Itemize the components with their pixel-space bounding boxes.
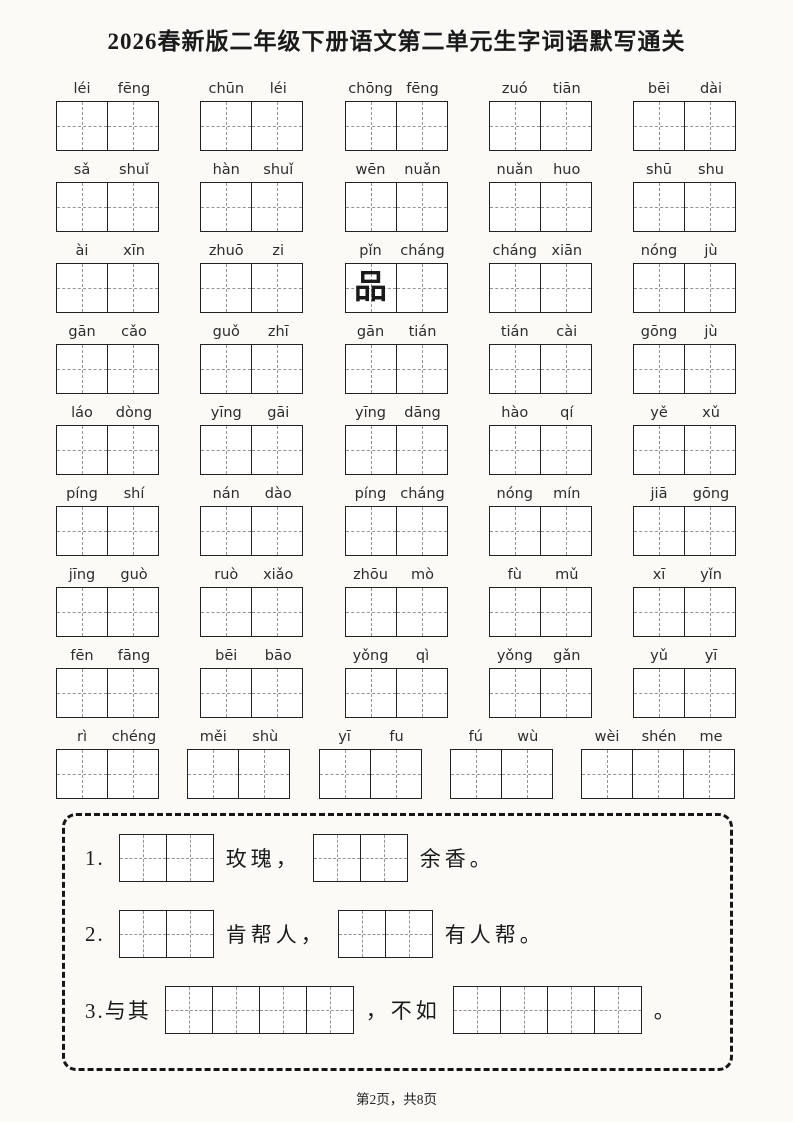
pinyin-row: yīfu [319, 728, 423, 747]
writing-grid [200, 344, 303, 394]
grid-cell [107, 102, 158, 150]
grid-cell [684, 345, 735, 393]
pinyin-row: fùmǔ [489, 566, 593, 585]
pinyin-syllable: mò [397, 566, 449, 585]
pinyin-syllable: hàn [200, 161, 252, 180]
pinyin-syllable: xǔ [685, 404, 737, 423]
pinyin-syllable: fēn [56, 647, 108, 666]
pinyin-row: xīyǐn [633, 566, 737, 585]
pinyin-syllable: zhuō [200, 242, 252, 261]
grid-cell [501, 750, 552, 798]
word-group: fúwù [450, 728, 554, 799]
word-group: xīyǐn [633, 566, 737, 637]
grid-cell [634, 669, 684, 717]
word-row-8: fēnfāngbēibāoyǒngqìyǒnggǎnyǔyī [56, 647, 737, 718]
grid-cell [396, 345, 447, 393]
grid-cell [396, 669, 447, 717]
grid-cell [490, 102, 540, 150]
exercise-text: ，不如 [366, 995, 441, 1025]
writing-grid [313, 834, 408, 882]
pinyin-row: ruòxiǎo [200, 566, 304, 585]
answer-cell [547, 987, 594, 1033]
answer-cell [259, 987, 306, 1033]
writing-grid [200, 425, 303, 475]
writing-grid [489, 587, 592, 637]
pinyin-syllable: ài [56, 242, 108, 261]
grid-cell [540, 183, 591, 231]
grid-cell [201, 102, 251, 150]
pinyin-row: hàoqí [489, 404, 593, 423]
pinyin-syllable: jīng [56, 566, 108, 585]
grid-cell [251, 426, 302, 474]
word-row-5: láodòngyīnggāiyīngdānghàoqíyěxǔ [56, 404, 737, 475]
grid-cell [251, 102, 302, 150]
pinyin-row: píngshí [56, 485, 160, 504]
grid-cell [396, 507, 447, 555]
pinyin-syllable: yǔ [633, 647, 685, 666]
pinyin-syllable: gōng [685, 485, 737, 504]
word-group: yǔyī [633, 647, 737, 718]
pinyin-syllable: zhī [252, 323, 304, 342]
answer-cell [120, 911, 166, 957]
writing-grid [56, 344, 159, 394]
exercise-text: 肯帮人， [226, 919, 326, 949]
pinyin-syllable: huo [541, 161, 593, 180]
pinyin-row: chūnléi [200, 80, 304, 99]
pinyin-syllable: léi [56, 80, 108, 99]
word-group: guǒzhī [200, 323, 304, 394]
pinyin-syllable: xiǎo [252, 566, 304, 585]
writing-grid [56, 587, 159, 637]
answer-cell [306, 987, 353, 1033]
pinyin-row: láodòng [56, 404, 160, 423]
grid-cell [107, 507, 158, 555]
pinyin-row: yǒnggǎn [489, 647, 593, 666]
pinyin-syllable: shí [108, 485, 160, 504]
pinyin-syllable: chéng [108, 728, 160, 747]
grid-cell [57, 426, 107, 474]
writing-grid [489, 668, 592, 718]
grid-cell [251, 183, 302, 231]
pinyin-syllable: yǒng [345, 647, 397, 666]
pinyin-syllable: mín [541, 485, 593, 504]
word-group: zhuōzi [200, 242, 304, 313]
pinyin-syllable: hào [489, 404, 541, 423]
pinyin-syllable: nuǎn [397, 161, 449, 180]
pinyin-syllable: guǒ [200, 323, 252, 342]
page-footer: 第2页，共8页 [0, 1088, 793, 1108]
pinyin-row: yǒngqì [345, 647, 449, 666]
pinyin-row: àixīn [56, 242, 160, 261]
pinyin-syllable: tián [397, 323, 449, 342]
pinyin-syllable: fù [489, 566, 541, 585]
word-group: chūnléi [200, 80, 304, 151]
writing-grid [200, 182, 303, 232]
grid-cell [634, 102, 684, 150]
grid-cell [107, 588, 158, 636]
pinyin-syllable: rì [56, 728, 108, 747]
grid-cell [57, 507, 107, 555]
grid-cell [107, 183, 158, 231]
grid-cell [396, 426, 447, 474]
pinyin-syllable: dòng [108, 404, 160, 423]
writing-grid [345, 668, 448, 718]
grid-cell [346, 345, 396, 393]
grid-cell [346, 183, 396, 231]
writing-grid [56, 101, 159, 151]
word-group: yīfu [319, 728, 423, 799]
grid-cell [540, 345, 591, 393]
pinyin-syllable: yě [633, 404, 685, 423]
pinyin-row: fúwù [450, 728, 554, 747]
pinyin-syllable: bāo [252, 647, 304, 666]
grid-cell [107, 750, 158, 798]
pinyin-syllable: píng [56, 485, 108, 504]
word-group: yīnggāi [200, 404, 304, 475]
exercise-text: 余香。 [420, 843, 495, 873]
pinyin-syllable: xī [633, 566, 685, 585]
writing-grid [345, 506, 448, 556]
filled-character: 品 [354, 272, 387, 305]
pinyin-syllable: nán [200, 485, 252, 504]
grid-cell [540, 426, 591, 474]
grid-cell [540, 102, 591, 150]
word-group: píngcháng [345, 485, 449, 556]
pinyin-syllable: pǐn [345, 242, 397, 261]
writing-grid [633, 344, 736, 394]
answer-cell [120, 835, 166, 881]
writing-grid [56, 182, 159, 232]
pinyin-row: pǐncháng [345, 242, 449, 261]
writing-grid [187, 749, 290, 799]
grid-cell [490, 345, 540, 393]
writing-grid [338, 910, 433, 958]
writing-grid [489, 182, 592, 232]
word-row-1: léifēngchūnléichōngfēngzuótiānbēidài [56, 80, 737, 151]
word-group: ruòxiǎo [200, 566, 304, 637]
writing-grid [345, 182, 448, 232]
writing-grid [345, 425, 448, 475]
pinyin-row: jiāgōng [633, 485, 737, 504]
pinyin-syllable: dào [252, 485, 304, 504]
pinyin-row: yěxǔ [633, 404, 737, 423]
grid-cell [540, 669, 591, 717]
grid-cell [201, 507, 251, 555]
pinyin-syllable: gān [56, 323, 108, 342]
grid-cell [57, 669, 107, 717]
grid-cell [540, 507, 591, 555]
grid-cell [396, 183, 447, 231]
word-group: tiáncài [489, 323, 593, 394]
pinyin-row: sǎshuǐ [56, 161, 160, 180]
pinyin-syllable: yǐn [685, 566, 737, 585]
writing-grid [633, 506, 736, 556]
writing-grid [345, 344, 448, 394]
writing-grid [56, 506, 159, 556]
writing-grid [489, 101, 592, 151]
pinyin-syllable: tián [489, 323, 541, 342]
word-group: chōngfēng [345, 80, 449, 151]
pinyin-syllable: cháng [397, 485, 449, 504]
grid-cell [57, 588, 107, 636]
pinyin-syllable: dāng [397, 404, 449, 423]
word-group: gōngjù [633, 323, 737, 394]
pinyin-syllable: gōng [633, 323, 685, 342]
answer-cell [166, 835, 213, 881]
grid-cell [346, 426, 396, 474]
answer-cell [314, 835, 360, 881]
pinyin-row: bēidài [633, 80, 737, 99]
writing-grid [56, 425, 159, 475]
pinyin-syllable: fāng [108, 647, 160, 666]
grid-cell [346, 588, 396, 636]
pinyin-syllable: jù [685, 242, 737, 261]
pinyin-row: léifēng [56, 80, 160, 99]
pinyin-syllable: cǎo [108, 323, 160, 342]
writing-grid [200, 668, 303, 718]
grid-cell [634, 183, 684, 231]
grid-cell [684, 588, 735, 636]
pinyin-row: nándào [200, 485, 304, 504]
pinyin-row: yǔyī [633, 647, 737, 666]
pinyin-row: yīngdāng [345, 404, 449, 423]
pinyin-syllable: cháng [397, 242, 449, 261]
writing-grid [56, 263, 159, 313]
grid-cell [634, 345, 684, 393]
grid-cell [201, 183, 251, 231]
grid-cell [582, 750, 632, 798]
pinyin-row: yīnggāi [200, 404, 304, 423]
word-group: yǒngqì [345, 647, 449, 718]
pinyin-syllable: wēn [345, 161, 397, 180]
exercise-text: 有人帮。 [445, 919, 545, 949]
pinyin-syllable: léi [252, 80, 304, 99]
word-group: àixīn [56, 242, 160, 313]
answer-cell [594, 987, 641, 1033]
pinyin-syllable: shū [633, 161, 685, 180]
pinyin-syllable: yī [319, 728, 371, 747]
pinyin-syllable: qì [397, 647, 449, 666]
pinyin-row: měishù [187, 728, 291, 747]
pinyin-syllable: fēng [108, 80, 160, 99]
word-group: láodòng [56, 404, 160, 475]
writing-grid [633, 668, 736, 718]
pinyin-syllable: bēi [200, 647, 252, 666]
pinyin-syllable: ruò [200, 566, 252, 585]
word-group: jiāgōng [633, 485, 737, 556]
pinyin-syllable: yīng [200, 404, 252, 423]
grid-cell [251, 507, 302, 555]
writing-grid [633, 101, 736, 151]
exercise-number: 1. [85, 846, 105, 871]
grid-cell [57, 345, 107, 393]
grid-cell [684, 669, 735, 717]
pinyin-syllable: tiān [541, 80, 593, 99]
pinyin-syllable: mǔ [541, 566, 593, 585]
pinyin-syllable: wù [502, 728, 554, 747]
word-group: wèishénme [581, 728, 737, 799]
pinyin-syllable: zhōu [345, 566, 397, 585]
worksheet-page: 2026春新版二年级下册语文第二单元生字词语默写通关 léifēngchūnlé… [0, 0, 793, 1122]
word-group: fùmǔ [489, 566, 593, 637]
grid-cell [188, 750, 238, 798]
pinyin-syllable: yǒng [489, 647, 541, 666]
word-group: léifēng [56, 80, 160, 151]
writing-grid [489, 263, 592, 313]
grid-cell [634, 426, 684, 474]
grid-cell [540, 588, 591, 636]
word-group: nándào [200, 485, 304, 556]
grid-cell [396, 102, 447, 150]
writing-grid [633, 425, 736, 475]
grid-cell [632, 750, 683, 798]
grid-cell [107, 426, 158, 474]
grid-cell [490, 588, 540, 636]
word-group: nóngmín [489, 485, 593, 556]
word-group: yěxǔ [633, 404, 737, 475]
grid-cell [683, 750, 734, 798]
grid-cell [490, 264, 540, 312]
pinyin-row: wēnnuǎn [345, 161, 449, 180]
grid-cell [540, 264, 591, 312]
exercise-number: 2. [85, 922, 105, 947]
pinyin-syllable: fu [371, 728, 423, 747]
word-group: měishù [187, 728, 291, 799]
word-group: fēnfāng [56, 647, 160, 718]
writing-grid [581, 749, 735, 799]
pinyin-syllable: nóng [489, 485, 541, 504]
exercise-line-2: 2.肯帮人，有人帮。 [85, 910, 710, 958]
grid-cell [107, 345, 158, 393]
writing-grid [119, 834, 214, 882]
word-group: píngshí [56, 485, 160, 556]
answer-cell [454, 987, 500, 1033]
pinyin-syllable: yīng [345, 404, 397, 423]
pinyin-syllable: yī [685, 647, 737, 666]
pinyin-row: fēnfāng [56, 647, 160, 666]
word-group: bēibāo [200, 647, 304, 718]
word-row-6: píngshínándàopíngchángnóngmínjiāgōng [56, 485, 737, 556]
pinyin-syllable: me [685, 728, 737, 747]
pinyin-syllable: cài [541, 323, 593, 342]
word-group: zuótiān [489, 80, 593, 151]
pinyin-syllable: xiān [541, 242, 593, 261]
pinyin-row: nóngjù [633, 242, 737, 261]
pinyin-row: chángxiān [489, 242, 593, 261]
pinyin-row: wèishénme [581, 728, 737, 747]
grid-cell [346, 102, 396, 150]
writing-grid [345, 587, 448, 637]
pinyin-syllable: píng [345, 485, 397, 504]
word-row-9: rìchéngměishùyīfufúwùwèishénme [56, 728, 737, 799]
writing-grid [453, 986, 642, 1034]
word-row-4: gāncǎoguǒzhīgāntiántiáncàigōngjù [56, 323, 737, 394]
exercise-section: 1.玫瑰，余香。2.肯帮人，有人帮。3.与其，不如。 [62, 813, 733, 1071]
pinyin-syllable: gǎn [541, 647, 593, 666]
pinyin-syllable: fēng [397, 80, 449, 99]
writing-grid [119, 910, 214, 958]
pinyin-syllable: sǎ [56, 161, 108, 180]
writing-grid [200, 506, 303, 556]
pinyin-row: nuǎnhuo [489, 161, 593, 180]
word-group: sǎshuǐ [56, 161, 160, 232]
pinyin-syllable: dài [685, 80, 737, 99]
grid-cell [107, 264, 158, 312]
pinyin-syllable: chūn [200, 80, 252, 99]
pinyin-syllable: gāi [252, 404, 304, 423]
pinyin-row: zuótiān [489, 80, 593, 99]
word-group: nuǎnhuo [489, 161, 593, 232]
answer-cell [500, 987, 547, 1033]
writing-grid [450, 749, 553, 799]
pinyin-syllable: nóng [633, 242, 685, 261]
pinyin-row: tiáncài [489, 323, 593, 342]
pinyin-syllable: chōng [345, 80, 397, 99]
pinyin-row: gāncǎo [56, 323, 160, 342]
writing-grid [200, 587, 303, 637]
writing-grid [56, 749, 159, 799]
pinyin-syllable: shuǐ [252, 161, 304, 180]
pinyin-syllable: měi [187, 728, 239, 747]
grid-cell [201, 345, 251, 393]
writing-grid [633, 263, 736, 313]
pinyin-syllable: fú [450, 728, 502, 747]
writing-grid [633, 182, 736, 232]
pinyin-row: píngcháng [345, 485, 449, 504]
exercise-line-3: 3.与其，不如。 [85, 986, 710, 1034]
grid-cell [251, 669, 302, 717]
pinyin-syllable: jù [685, 323, 737, 342]
pinyin-row: zhuōzi [200, 242, 304, 261]
grid-cell [490, 183, 540, 231]
word-group: shūshu [633, 161, 737, 232]
answer-cell [385, 911, 432, 957]
grid-cell [251, 588, 302, 636]
pinyin-syllable: wèi [581, 728, 633, 747]
exercise-text: 玫瑰， [226, 843, 301, 873]
grid-cell [201, 669, 251, 717]
pinyin-row: chōngfēng [345, 80, 449, 99]
word-group: nóngjù [633, 242, 737, 313]
word-group: bēidài [633, 80, 737, 151]
pinyin-syllable: shù [239, 728, 291, 747]
writing-grid [489, 506, 592, 556]
pinyin-row: jīngguò [56, 566, 160, 585]
writing-grid [165, 986, 354, 1034]
word-row-2: sǎshuǐhànshuǐwēnnuǎnnuǎnhuoshūshu [56, 161, 737, 232]
page-title: 2026春新版二年级下册语文第二单元生字词语默写通关 [56, 26, 737, 58]
exercise-line-1: 1.玫瑰，余香。 [85, 834, 710, 882]
pinyin-syllable: shuǐ [108, 161, 160, 180]
writing-grid [200, 263, 303, 313]
grid-cell [251, 264, 302, 312]
word-row-7: jīngguòruòxiǎozhōumòfùmǔxīyǐn [56, 566, 737, 637]
writing-grid [56, 668, 159, 718]
pinyin-row: shūshu [633, 161, 737, 180]
writing-grid [200, 101, 303, 151]
word-grid-section: léifēngchūnléichōngfēngzuótiānbēidàisǎsh… [56, 80, 737, 799]
pinyin-syllable: shén [633, 728, 685, 747]
answer-cell [166, 911, 213, 957]
answer-cell [339, 911, 385, 957]
grid-cell [57, 750, 107, 798]
pinyin-row: hànshuǐ [200, 161, 304, 180]
pinyin-syllable: zuó [489, 80, 541, 99]
answer-cell [166, 987, 212, 1033]
pinyin-syllable: gān [345, 323, 397, 342]
word-group: hànshuǐ [200, 161, 304, 232]
grid-cell [370, 750, 421, 798]
